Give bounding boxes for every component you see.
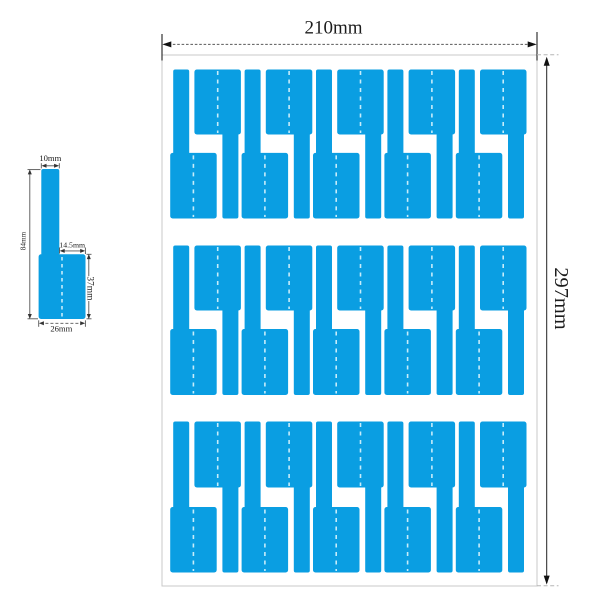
svg-text:84mm: 84mm — [20, 231, 28, 250]
svg-text:26mm: 26mm — [50, 324, 72, 334]
svg-text:37mm: 37mm — [85, 276, 95, 301]
svg-text:210mm: 210mm — [304, 18, 362, 39]
svg-text:14.5mm: 14.5mm — [59, 240, 85, 249]
svg-text:10mm: 10mm — [39, 153, 61, 163]
svg-text:297mm: 297mm — [550, 267, 572, 329]
